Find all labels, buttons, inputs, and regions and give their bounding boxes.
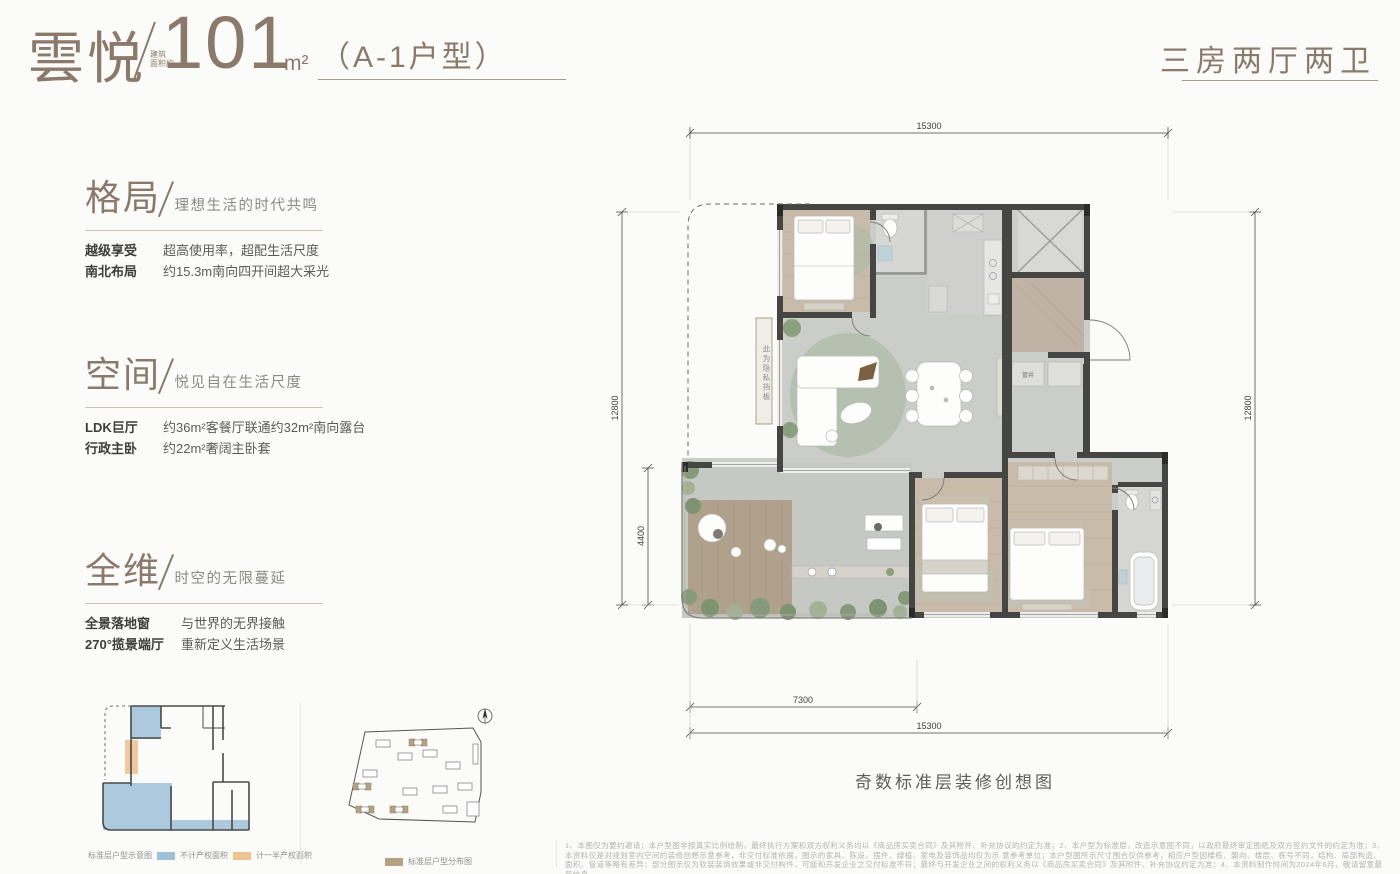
feature-text: 约36m²客餐厅联通约32m²南向露台: [163, 420, 365, 435]
unit-type-underline: [318, 79, 566, 80]
dim-left-lower: 4400: [636, 526, 646, 546]
feature-label: 越级享受: [85, 240, 163, 261]
section-quanwei: 全维 时空的无限蔓延 全景落地窗与世界的无界接触 270°揽景端厅重新定义生活场…: [85, 553, 335, 655]
compass-icon: [478, 708, 492, 724]
mini-highlight-areas: [103, 706, 249, 830]
plant-icon: [783, 319, 801, 337]
section-geju: 格局 理想生活的时代共鸣 越级享受超高使用率，超配生活尺度 南北布局约15.3m…: [85, 180, 335, 282]
fridge-icon: [929, 286, 947, 312]
feature-text: 约15.3m南向四开间超大采光: [163, 264, 329, 279]
feature-text: 超高使用率，超配生活尺度: [163, 243, 319, 258]
disclaimer-text: 1、本图仅为要约邀请；本户型图非按真实比例绘制，最终执行方案和双方权利义务均以《…: [565, 841, 1385, 874]
bed-icon: [1010, 520, 1084, 610]
section-subtitle: 悦见自在生活尺度: [175, 371, 303, 393]
kitchen-sink-icon: [988, 294, 999, 304]
feature-row: LDK巨厅约36m²客餐厅联通约32m²南向露台: [85, 417, 335, 438]
feature-row: 行政主卧约22m²奢阔主卧套: [85, 438, 335, 459]
section-title: 格局: [85, 180, 161, 216]
mini-plan-caption: 标准层户型示意图: [88, 850, 152, 861]
feature-label: 270°揽景端厅: [85, 634, 181, 655]
legend-swatch-orange: [233, 852, 251, 860]
site-plan-legend: 标准层户型分布图: [385, 856, 472, 867]
feature-text: 与世界的无界接触: [181, 616, 285, 631]
section-divider: [85, 230, 323, 231]
area-value: 101: [162, 0, 291, 85]
feature-row: 全景落地窗与世界的无界接触: [85, 613, 335, 634]
wardrobe-icon: [1018, 466, 1108, 480]
dim-left-main: 12800: [610, 395, 620, 420]
section-subtitle: 时空的无限蔓延: [175, 567, 287, 589]
feature-label: 行政主卧: [85, 438, 163, 459]
feature-row: 270°揽景端厅重新定义生活场景: [85, 634, 335, 655]
site-plan-svg: [335, 702, 510, 852]
privacy-note: 此为隐私挡板: [757, 322, 772, 424]
legend-label: 不计产权面积: [180, 850, 228, 861]
project-name: 雲悦: [28, 14, 146, 95]
site-plan-caption: 标准层户型分布图: [408, 856, 472, 867]
unit-type-label: （A-1户型）: [320, 32, 508, 76]
page: 雲悦 建筑 面积约 101 m² （A-1户型） 三房两厅两卫 格局 理想生活的…: [0, 0, 1400, 874]
layout-summary-underline: [1182, 80, 1378, 81]
bed-icon: [794, 216, 854, 310]
dim-bottom-inner: 7300: [793, 695, 813, 705]
feature-row: 南北布局约15.3m南向四开间超大采光: [85, 261, 335, 282]
washer-icon: [953, 214, 983, 232]
mini-floorplan-svg: [95, 692, 295, 850]
dim-right: 12800: [1243, 395, 1253, 420]
floorplan-svg: 管井 15300 12800 4400 12800 7300 15300: [560, 100, 1300, 780]
bath-mat: [1119, 570, 1127, 584]
feature-label: 全景落地窗: [85, 613, 181, 634]
dim-bottom-full: 15300: [916, 721, 941, 731]
legend-label: 计一半产权面积: [256, 850, 312, 861]
feature-text: 约22m²奢阔主卧套: [163, 441, 271, 456]
dining-table-icon: [906, 362, 973, 426]
vertical-divider: [300, 703, 301, 863]
section-title: 全维: [85, 553, 161, 589]
legend-swatch-blue: [157, 852, 175, 860]
feature-label: LDK巨厅: [85, 417, 163, 438]
area-unit: m²: [284, 52, 309, 76]
bathtub-icon: [1130, 552, 1158, 610]
toilet-icon: [882, 214, 898, 237]
console-table: [865, 515, 903, 531]
layout-summary: 三房两厅两卫: [1160, 36, 1376, 80]
vertical-divider: [556, 840, 557, 867]
section-kongjian: 空间 悦见自在生活尺度 LDK巨厅约36m²客餐厅联通约32m²南向露台 行政主…: [85, 357, 335, 459]
bed-icon: [920, 496, 990, 592]
feature-label: 南北布局: [85, 261, 163, 282]
floorplan-caption: 奇数标准层装修创想图: [845, 768, 1065, 793]
mini-plan-legend: 标准层户型示意图 不计产权面积 计一半产权面积: [88, 850, 312, 861]
legend-swatch-tan: [385, 858, 403, 866]
feature-row: 越级享受超高使用率，超配生活尺度: [85, 240, 335, 261]
shaft-label: 管井: [1022, 371, 1034, 379]
feature-text: 重新定义生活场景: [181, 637, 285, 652]
section-divider: [85, 407, 323, 408]
site-buildings: [363, 740, 479, 816]
section-subtitle: 理想生活的时代共鸣: [175, 194, 319, 216]
washbasin-icon: [878, 246, 892, 261]
closet: [1048, 362, 1081, 386]
section-divider: [85, 603, 323, 604]
dim-top: 15300: [916, 121, 941, 131]
section-title: 空间: [85, 357, 161, 393]
